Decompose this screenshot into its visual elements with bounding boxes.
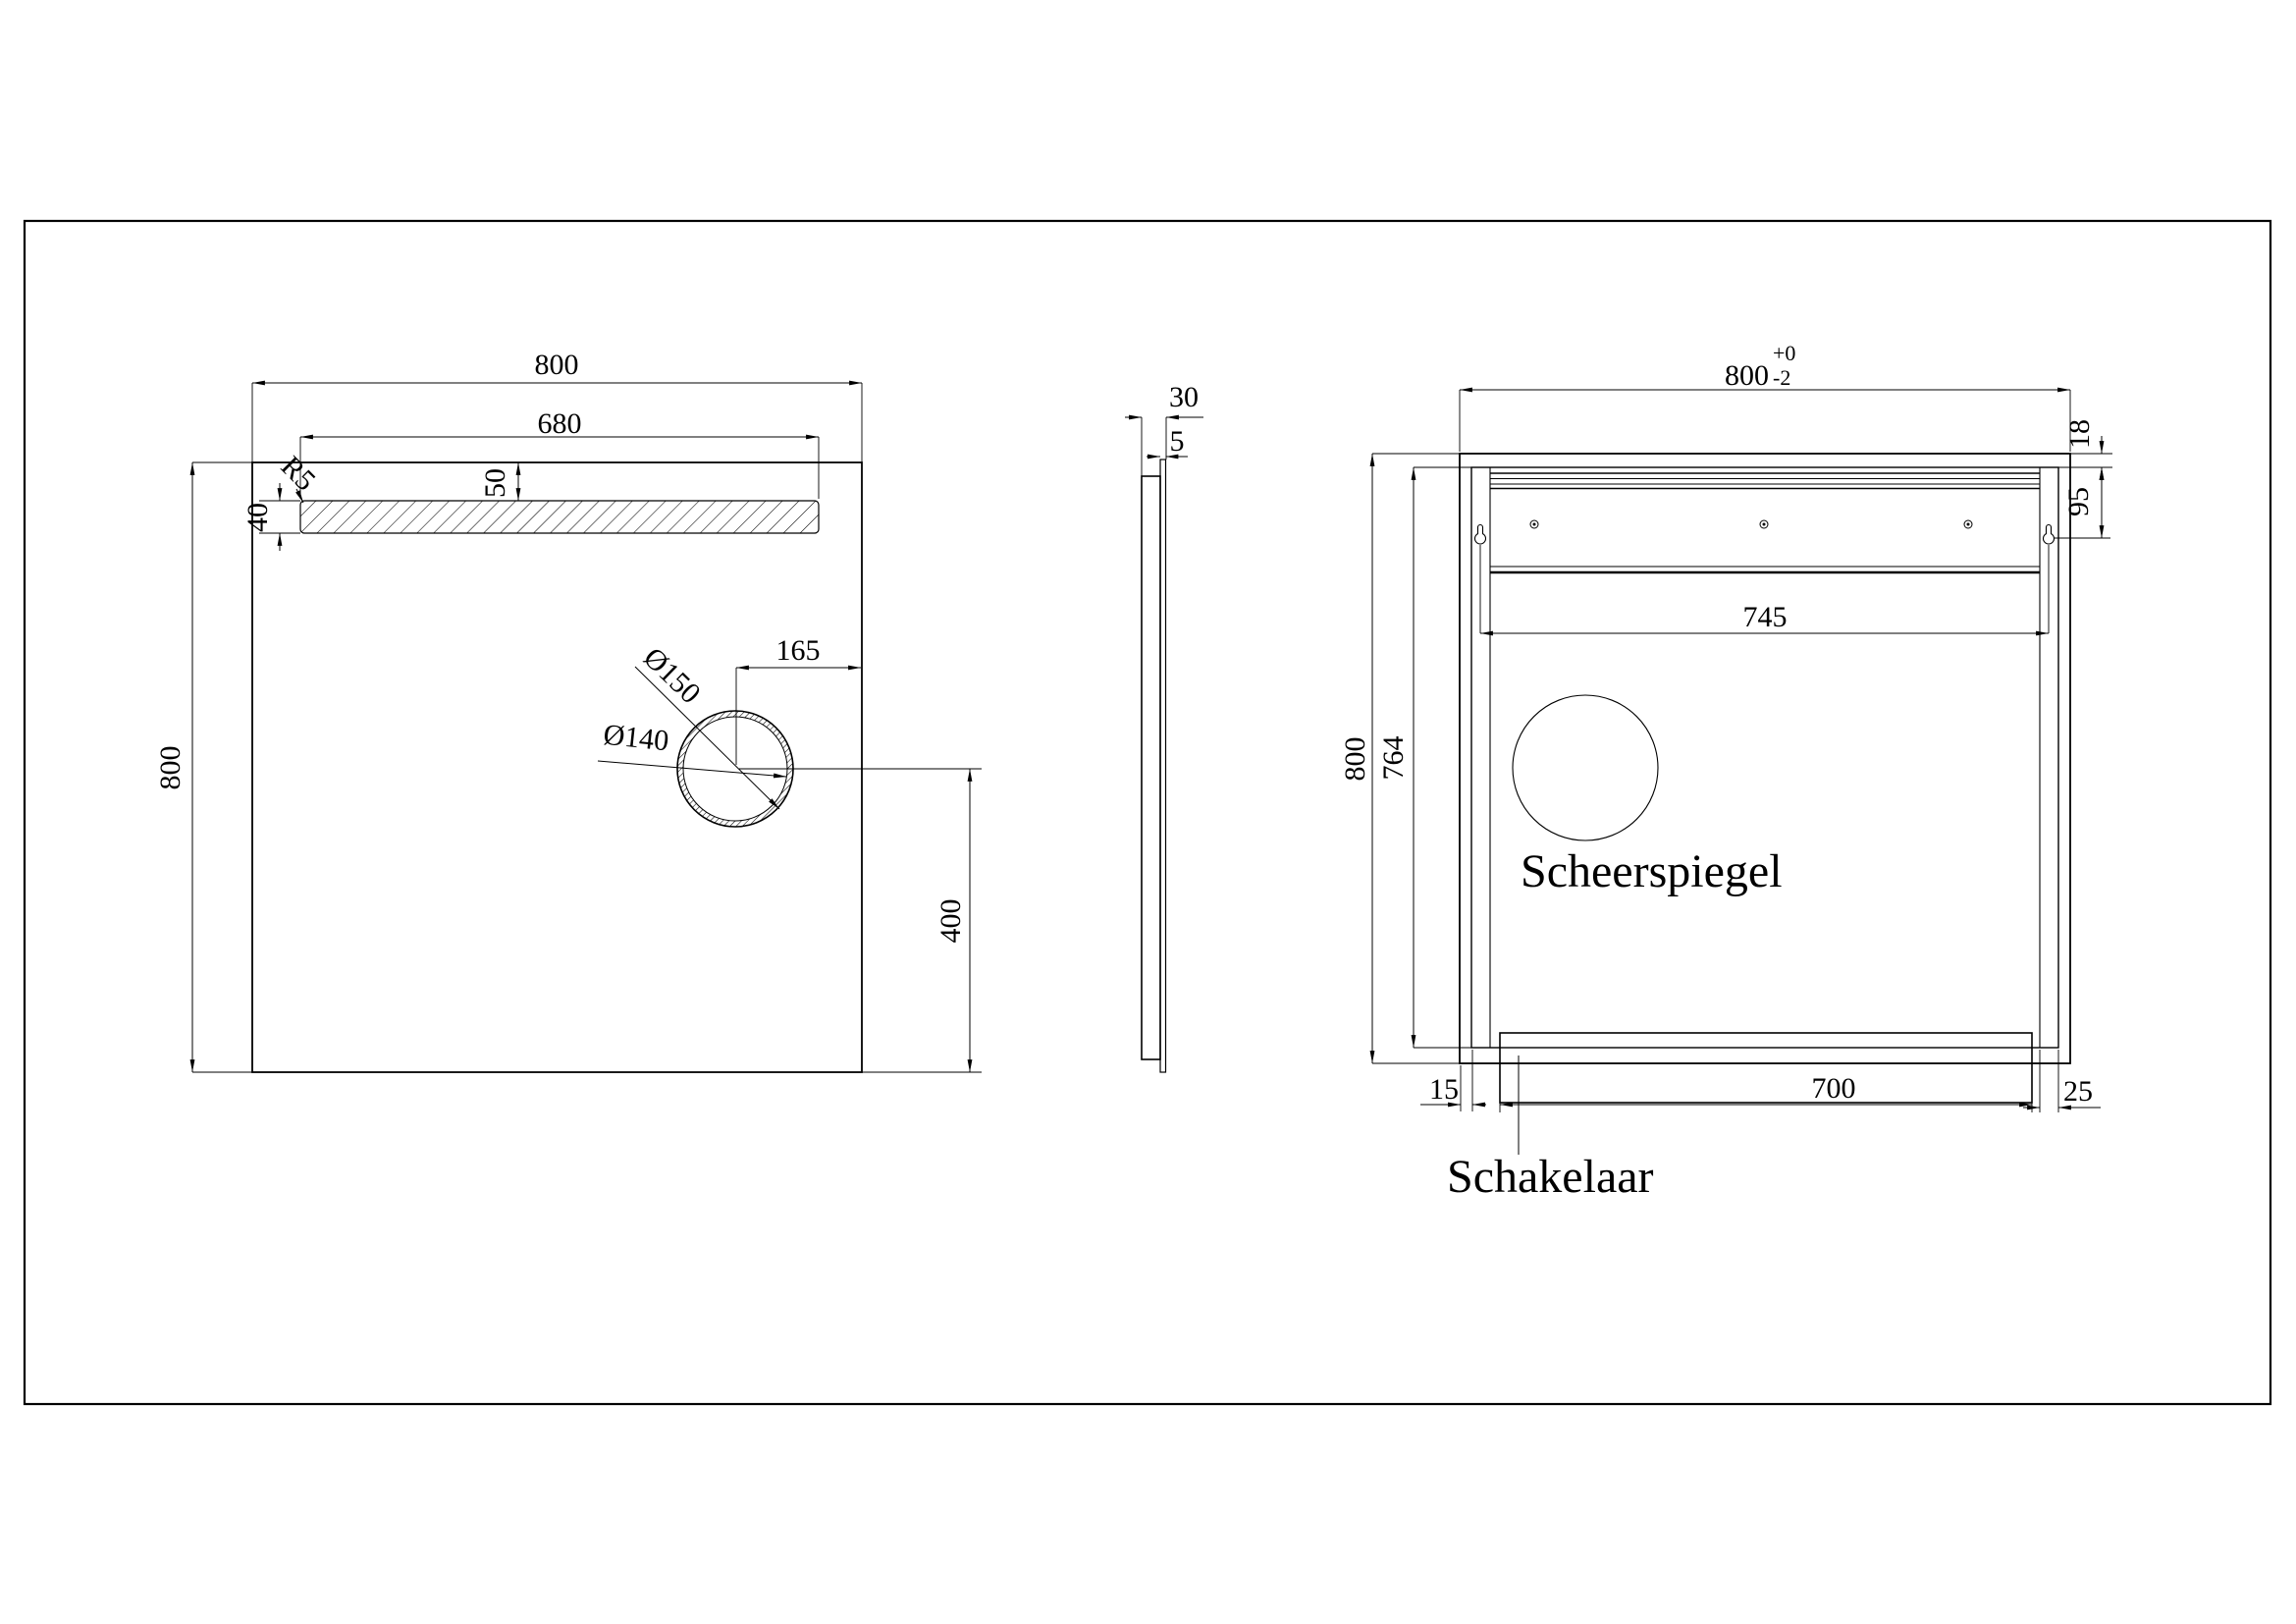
front-dim-hole-from-right: 165	[776, 634, 821, 667]
back-dim-hanger-from-top: 95	[2062, 487, 2095, 516]
front-dim-hole-inner: Ø140	[602, 719, 670, 758]
side-dim-depth: 30	[1169, 381, 1199, 413]
front-dim-light-height: 40	[241, 503, 274, 532]
front-dim-light-width: 680	[538, 407, 582, 440]
back-dim-width: 800	[1725, 359, 1769, 392]
back-dim-height: 800	[1339, 737, 1371, 782]
side-dim-glass-thickness: 5	[1170, 425, 1185, 458]
back-dim-glass-lip: 18	[2063, 419, 2096, 449]
front-dim-height: 800	[154, 746, 187, 790]
label-switch: Schakelaar	[1447, 1151, 1654, 1203]
screw-hole-center	[1533, 523, 1536, 526]
screw-hole-center	[1967, 523, 1970, 526]
front-dim-width: 800	[535, 349, 579, 381]
page-background	[0, 0, 2296, 1624]
back-dim-width-tol-lower: -2	[1773, 365, 1790, 390]
label-shaving-mirror: Scheerspiegel	[1521, 845, 1783, 897]
screw-hole-center	[1763, 523, 1766, 526]
back-dim-switch-length: 700	[1812, 1072, 1856, 1105]
technical-drawing-canvas: 800 680 800 50 40 R5 Ø150 Ø140 165 400 3…	[0, 0, 2296, 1624]
back-dim-width-tol-upper: +0	[1773, 341, 1795, 365]
front-light-strip	[300, 501, 819, 533]
front-dim-light-offset: 50	[479, 468, 511, 498]
back-dim-edge-inset: 15	[1429, 1073, 1459, 1106]
back-dim-frame-thickness: 25	[2063, 1075, 2093, 1108]
back-dim-hanger-span: 745	[1743, 601, 1788, 633]
front-dim-hole-from-bottom: 400	[934, 899, 967, 944]
back-dim-frame-height: 764	[1377, 736, 1410, 781]
